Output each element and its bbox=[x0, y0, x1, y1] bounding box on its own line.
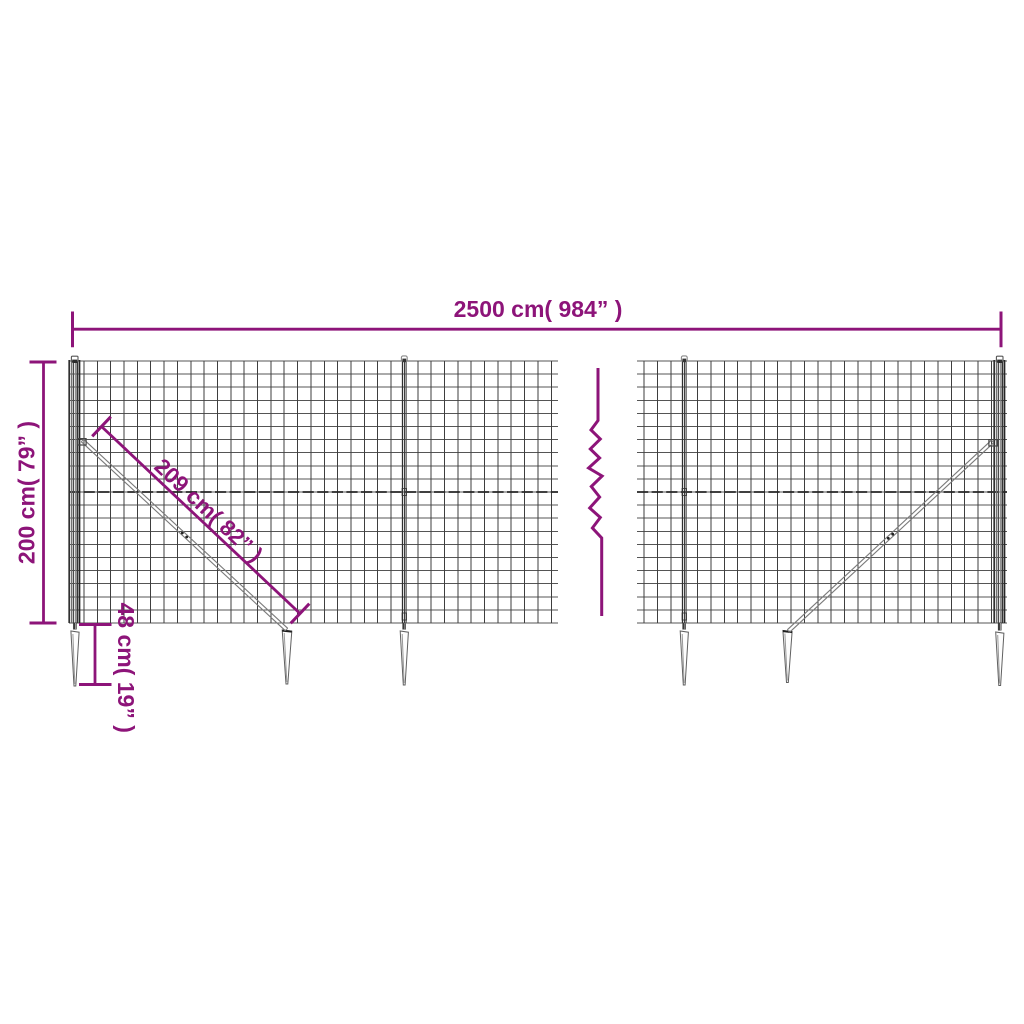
svg-text:48 cm( 19” ): 48 cm( 19” ) bbox=[113, 603, 139, 733]
svg-text:2500 cm( 984” ): 2500 cm( 984” ) bbox=[454, 296, 623, 322]
svg-text:200 cm( 79” ): 200 cm( 79” ) bbox=[14, 421, 40, 564]
